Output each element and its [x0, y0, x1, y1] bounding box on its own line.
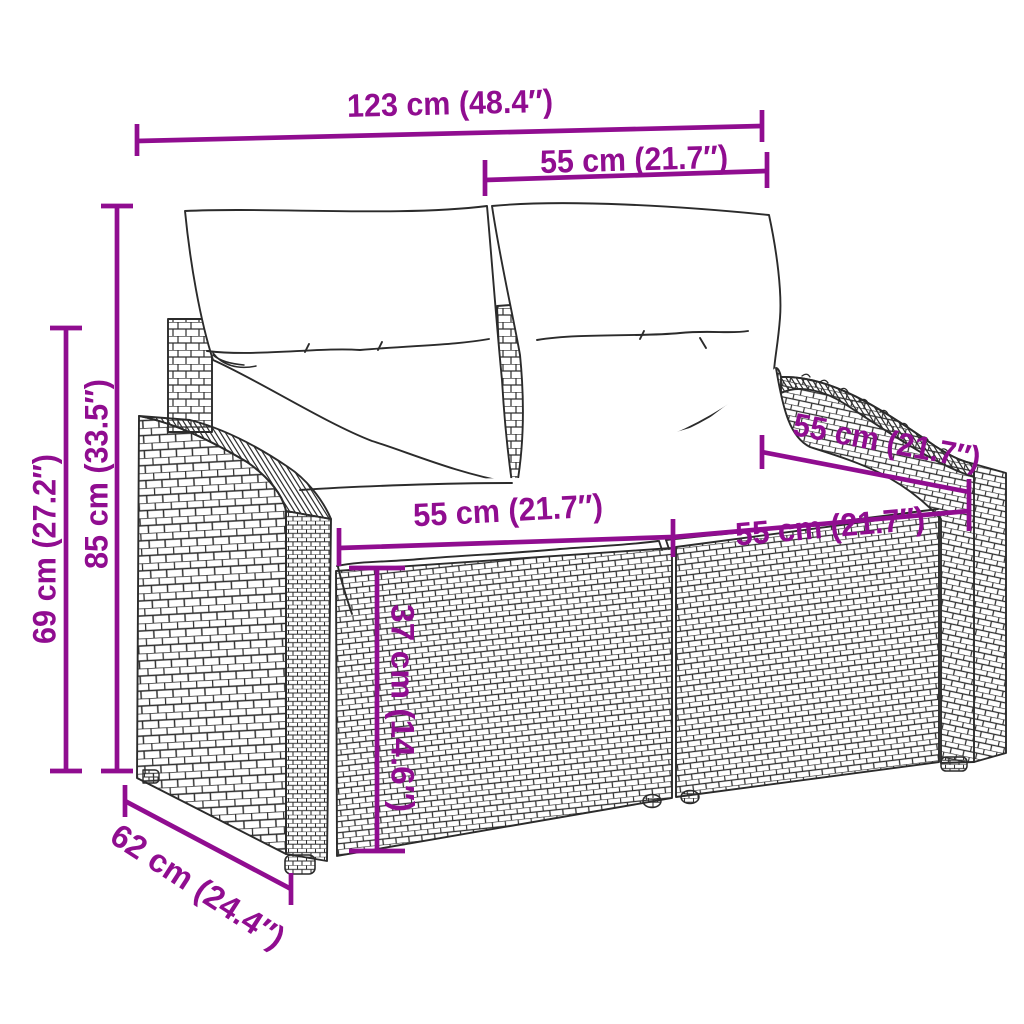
svg-text:85 cm (33.5″): 85 cm (33.5″) — [78, 379, 114, 569]
svg-text:37 cm (14.6″): 37 cm (14.6″) — [385, 604, 421, 812]
svg-text:123 cm (48.4″): 123 cm (48.4″) — [347, 83, 554, 124]
svg-text:69 cm (27.2″): 69 cm (27.2″) — [26, 454, 62, 644]
svg-text:55 cm (21.7″): 55 cm (21.7″) — [540, 139, 729, 180]
